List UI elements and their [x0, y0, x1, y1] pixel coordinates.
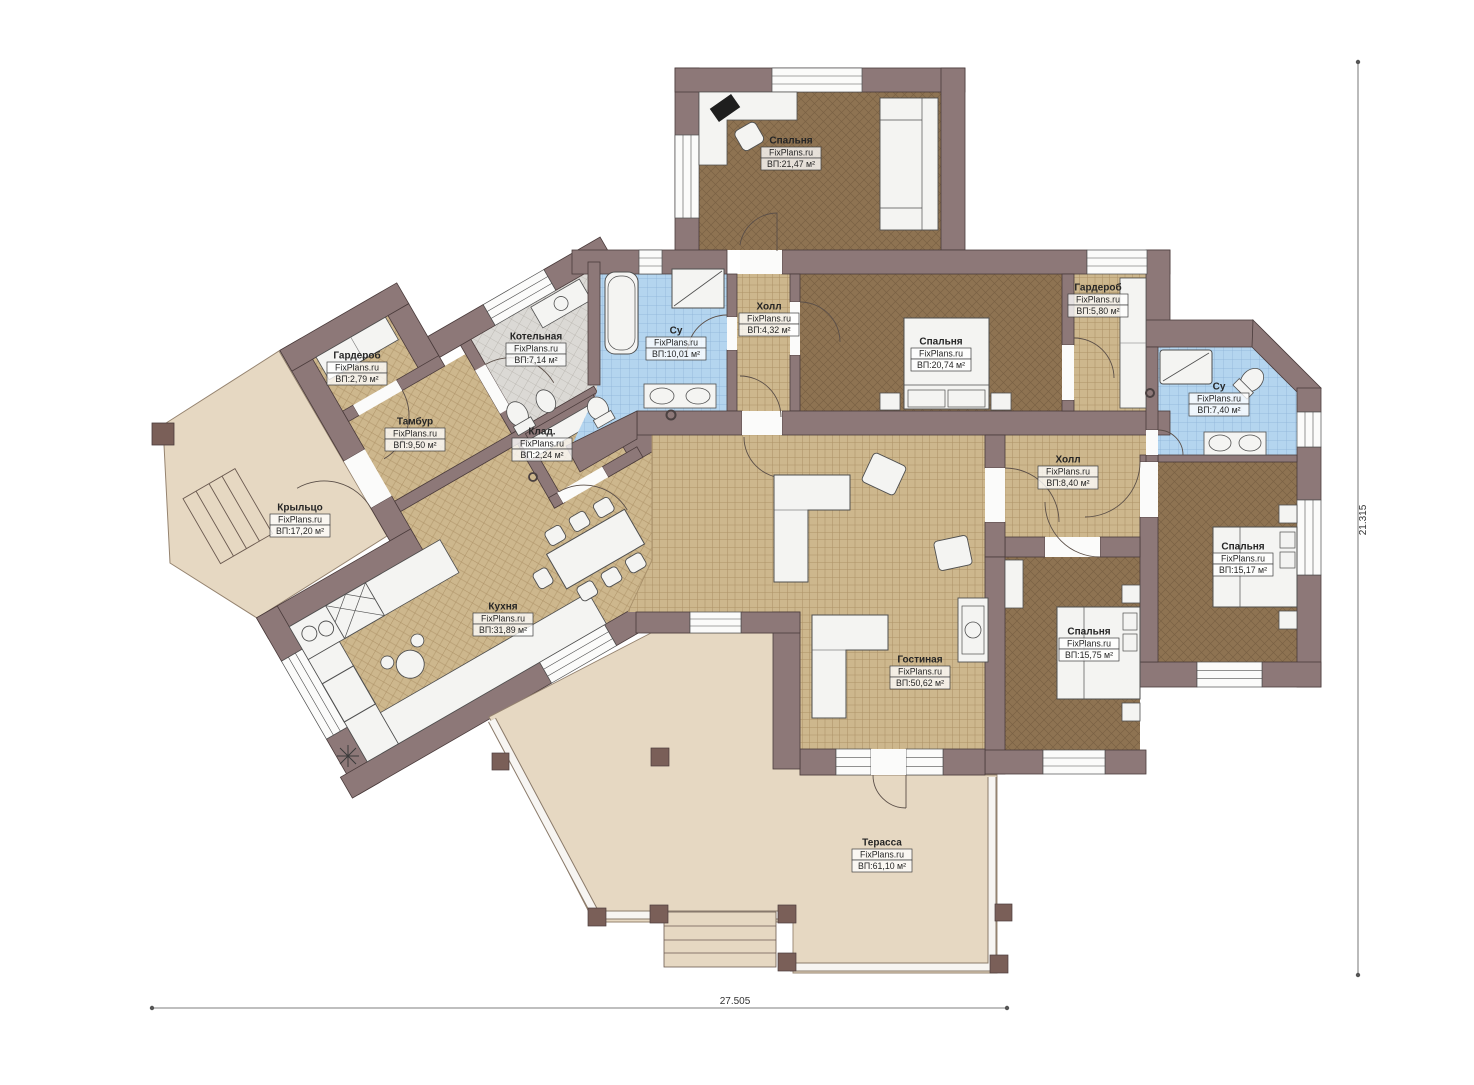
svg-text:ВП:2,24 м²: ВП:2,24 м² — [520, 450, 563, 460]
svg-text:FixPlans.ru: FixPlans.ru — [481, 614, 525, 624]
svg-text:Тамбур: Тамбур — [397, 416, 433, 428]
svg-text:FixPlans.ru: FixPlans.ru — [898, 667, 942, 677]
svg-text:FixPlans.ru: FixPlans.ru — [769, 148, 813, 158]
svg-text:Су: Су — [1213, 382, 1226, 393]
svg-text:ВП:61,10 м²: ВП:61,10 м² — [858, 861, 906, 871]
svg-text:Спальня: Спальня — [769, 136, 812, 147]
svg-text:Гостиная: Гостиная — [897, 655, 942, 666]
svg-text:FixPlans.ru: FixPlans.ru — [1076, 295, 1120, 305]
svg-text:ВП:50,62 м²: ВП:50,62 м² — [896, 678, 944, 688]
svg-text:FixPlans.ru: FixPlans.ru — [860, 850, 904, 860]
svg-text:ВП:15,17 м²: ВП:15,17 м² — [1219, 565, 1267, 575]
svg-text:FixPlans.ru: FixPlans.ru — [335, 363, 379, 373]
svg-text:ВП:7,40 м²: ВП:7,40 м² — [1197, 405, 1240, 415]
svg-text:FixPlans.ru: FixPlans.ru — [514, 344, 558, 354]
svg-text:ВП:5,80 м²: ВП:5,80 м² — [1076, 306, 1119, 316]
svg-text:ВП:20,74 м²: ВП:20,74 м² — [917, 360, 965, 370]
svg-text:Кухня: Кухня — [488, 602, 517, 613]
svg-text:FixPlans.ru: FixPlans.ru — [1197, 394, 1241, 404]
svg-text:FixPlans.ru: FixPlans.ru — [1046, 467, 1090, 477]
svg-text:ВП:7,14 м²: ВП:7,14 м² — [514, 355, 557, 365]
svg-text:Холл: Холл — [1055, 455, 1080, 466]
svg-text:FixPlans.ru: FixPlans.ru — [1067, 639, 1111, 649]
svg-text:Крыльцо: Крыльцо — [277, 503, 323, 514]
svg-text:ВП:17,20 м²: ВП:17,20 м² — [276, 526, 324, 536]
svg-text:Спальня: Спальня — [1221, 542, 1264, 553]
svg-text:ВП:21,47 м²: ВП:21,47 м² — [767, 159, 815, 169]
svg-text:ВП:9,50 м²: ВП:9,50 м² — [393, 440, 436, 450]
svg-text:ВП:31,89 м²: ВП:31,89 м² — [479, 625, 527, 635]
svg-text:FixPlans.ru: FixPlans.ru — [520, 439, 564, 449]
svg-text:Холл: Холл — [756, 302, 781, 313]
svg-text:Клад.: Клад. — [528, 427, 555, 438]
svg-text:ВП:15,75 м²: ВП:15,75 м² — [1065, 650, 1113, 660]
svg-text:FixPlans.ru: FixPlans.ru — [1221, 554, 1265, 564]
svg-text:Терасса: Терасса — [862, 838, 902, 849]
svg-text:21.315: 21.315 — [1358, 504, 1369, 535]
svg-text:Гардероб: Гардероб — [1074, 282, 1121, 294]
svg-text:ВП:2,79 м²: ВП:2,79 м² — [335, 374, 378, 384]
svg-text:Котельная: Котельная — [510, 332, 563, 343]
svg-text:Су: Су — [670, 326, 683, 337]
svg-text:FixPlans.ru: FixPlans.ru — [654, 338, 698, 348]
svg-text:FixPlans.ru: FixPlans.ru — [278, 515, 322, 525]
svg-text:Спальня: Спальня — [1067, 627, 1110, 638]
svg-text:ВП:8,40 м²: ВП:8,40 м² — [1046, 478, 1089, 488]
svg-text:27.505: 27.505 — [720, 996, 751, 1007]
svg-text:ВП:4,32 м²: ВП:4,32 м² — [747, 325, 790, 335]
svg-text:FixPlans.ru: FixPlans.ru — [747, 314, 791, 324]
svg-text:FixPlans.ru: FixPlans.ru — [919, 349, 963, 359]
svg-text:Гардероб: Гардероб — [333, 350, 380, 362]
svg-text:FixPlans.ru: FixPlans.ru — [393, 429, 437, 439]
svg-text:Спальня: Спальня — [919, 337, 962, 348]
svg-text:ВП:10,01 м²: ВП:10,01 м² — [652, 349, 700, 359]
